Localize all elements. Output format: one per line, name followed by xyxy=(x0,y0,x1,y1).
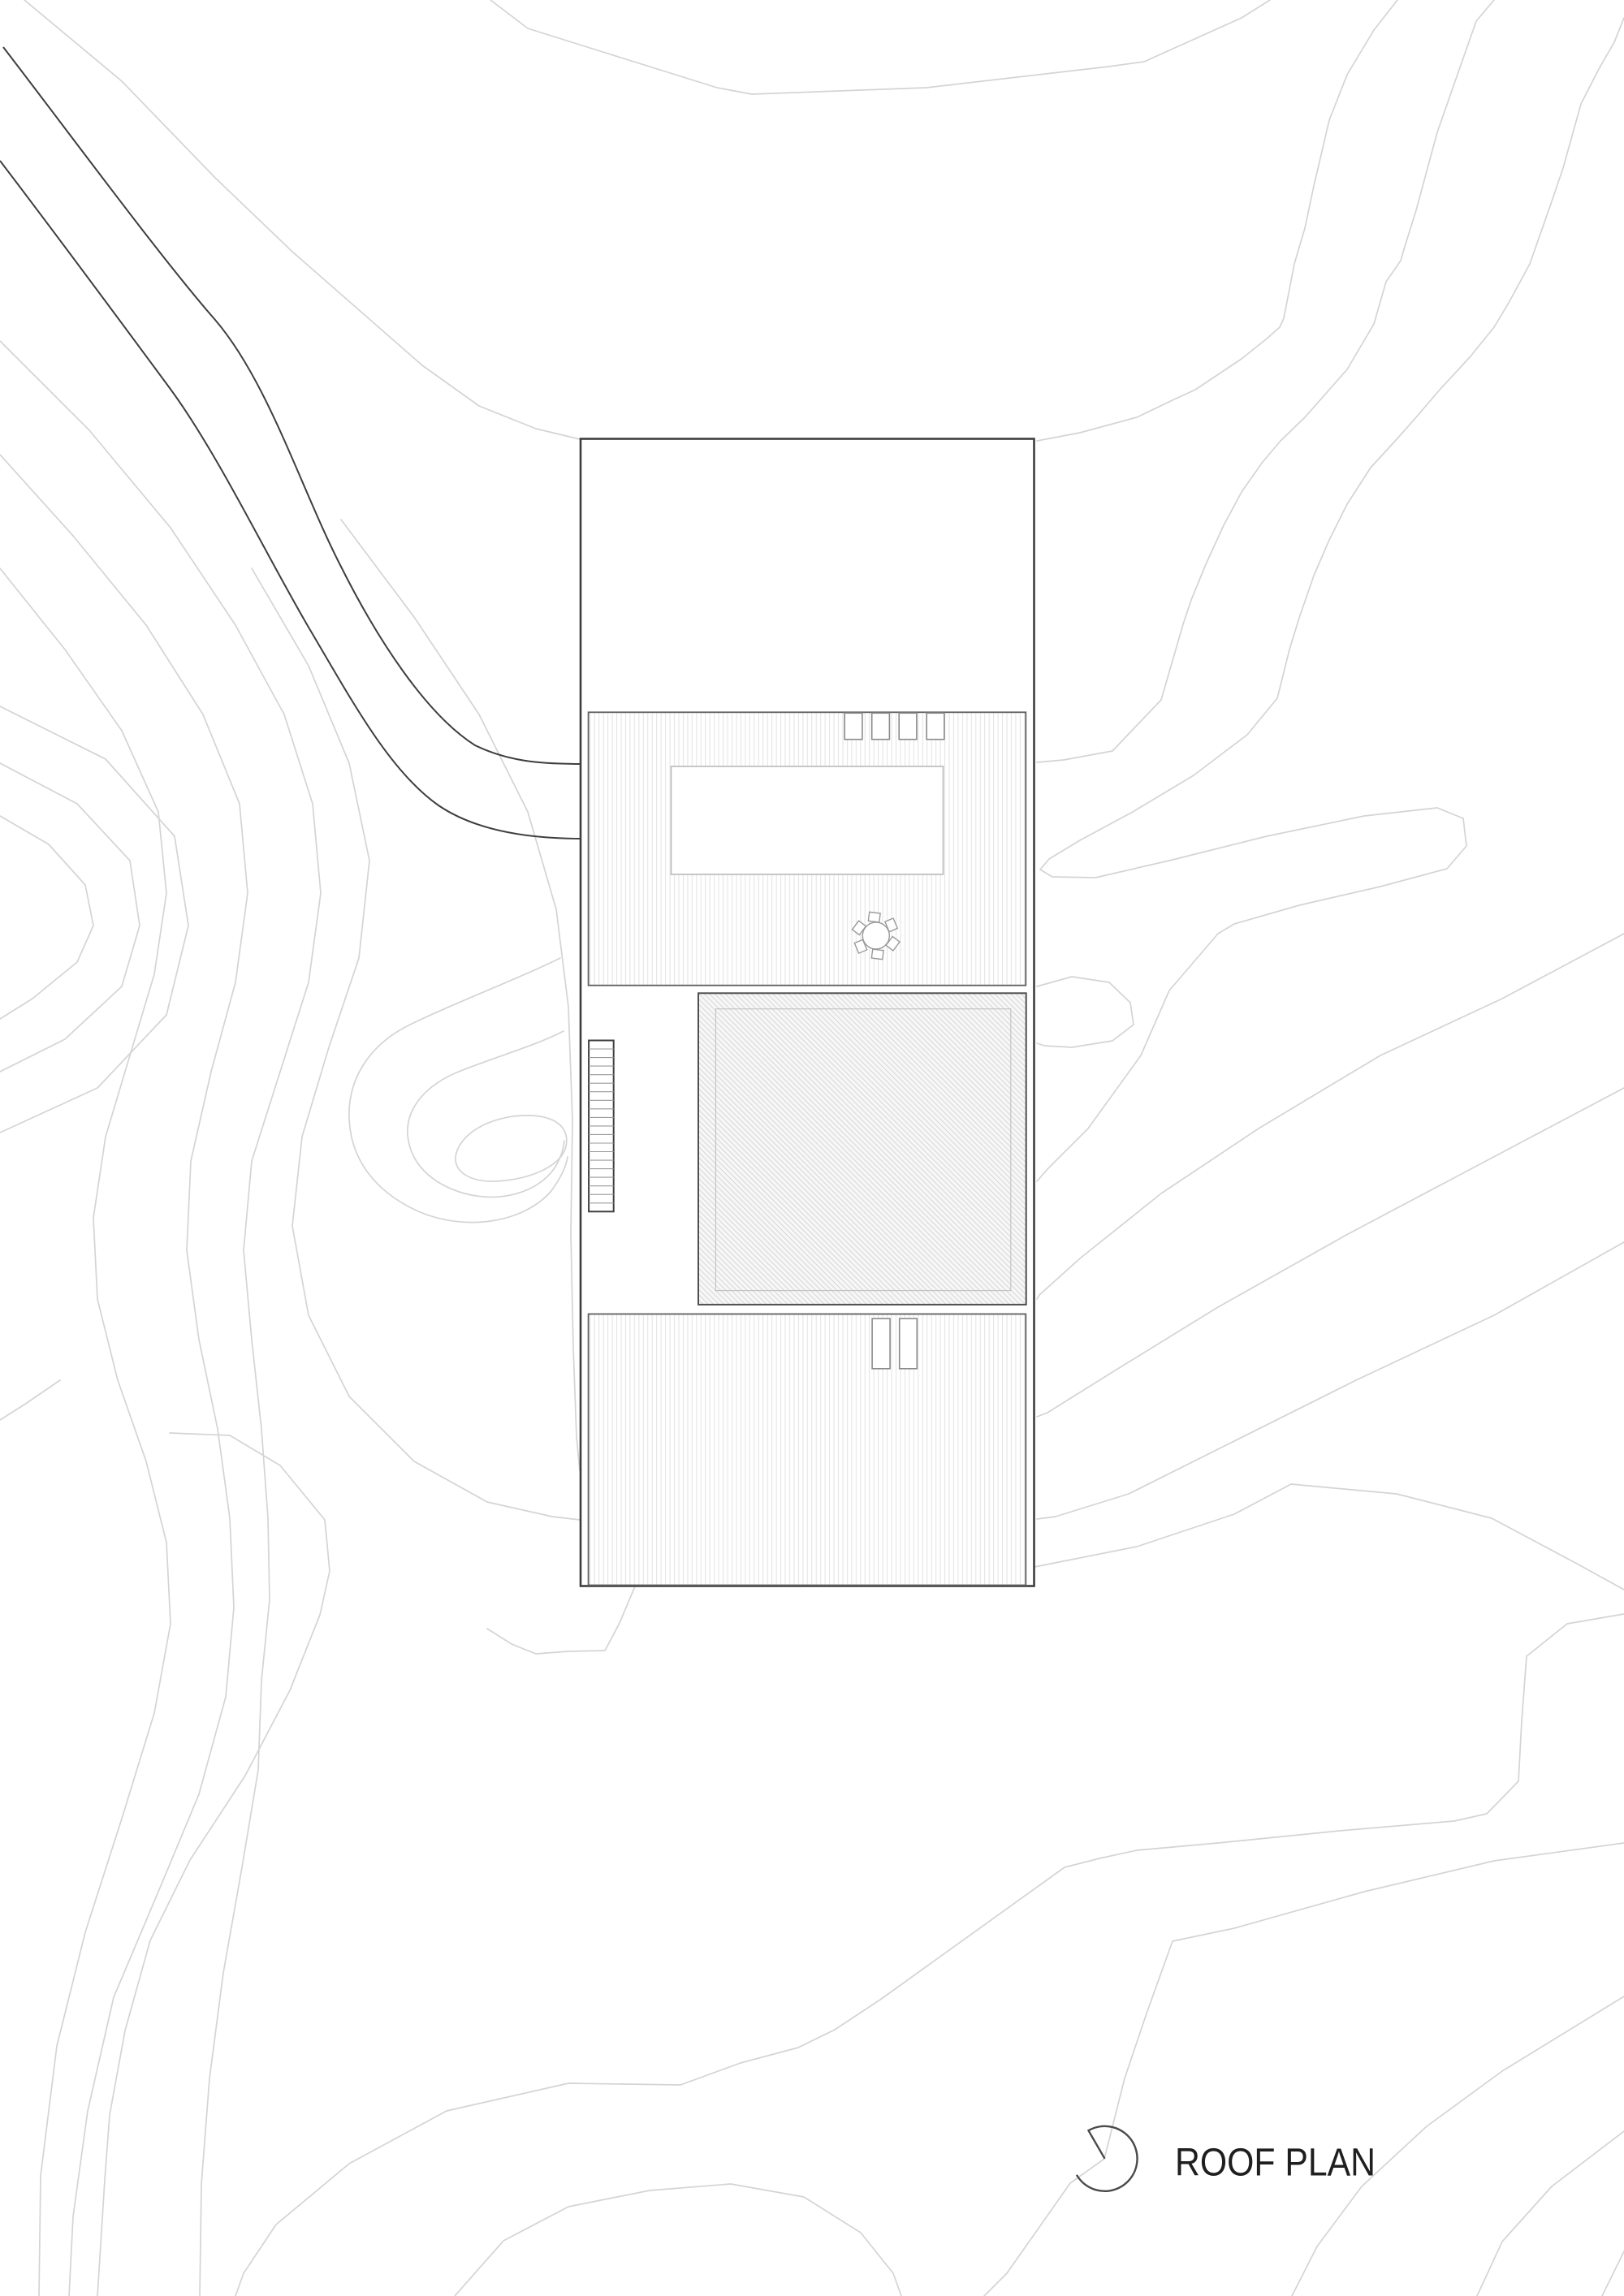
svg-text:ROOF PLAN: ROOF PLAN xyxy=(1175,2141,1376,2184)
